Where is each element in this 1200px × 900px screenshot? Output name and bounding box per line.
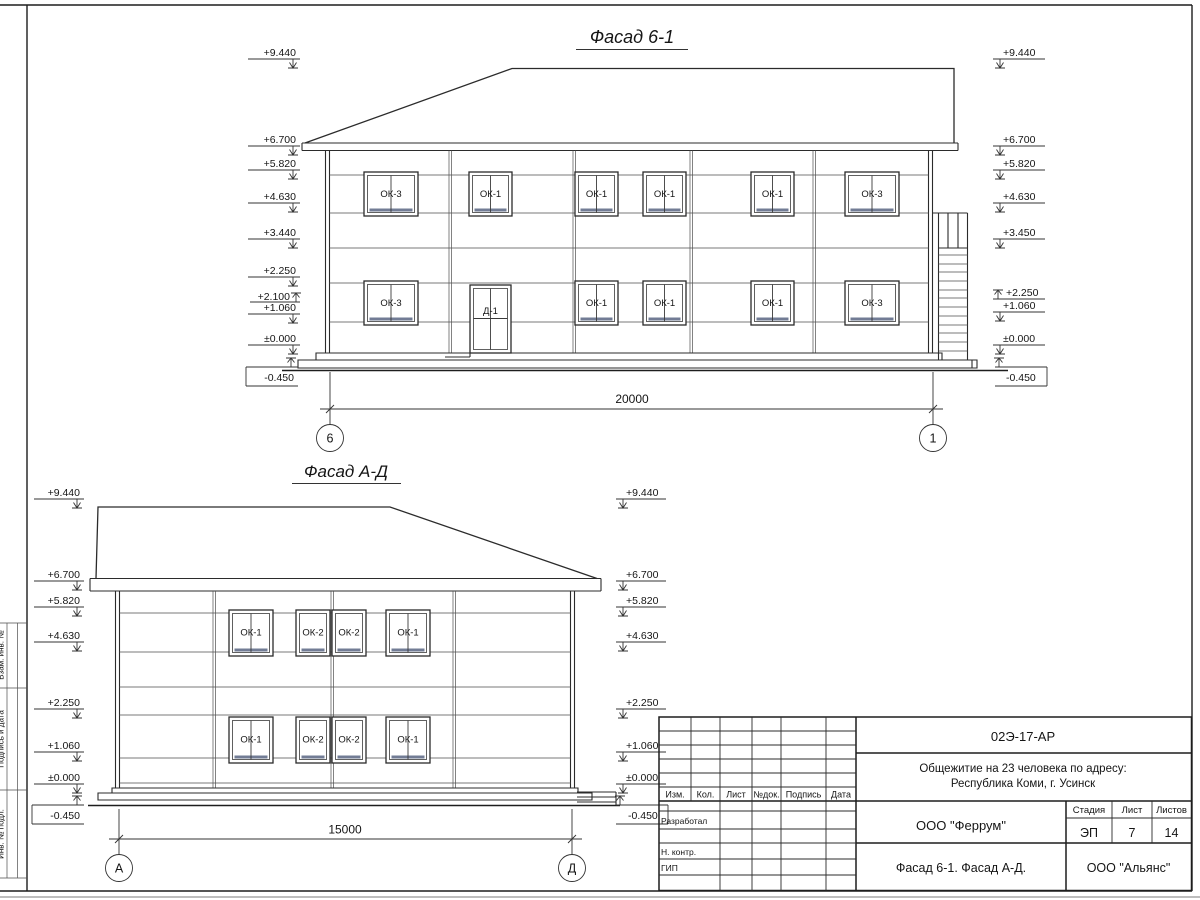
plinth-base-a-d xyxy=(98,788,592,800)
col-list: Лист xyxy=(726,790,746,800)
window-ok1: ОК-1 xyxy=(751,172,794,216)
window-ok3: ОК-3 xyxy=(845,172,899,216)
elevation-mark: +6.700 xyxy=(1003,134,1036,146)
dimension-6-1: 20000 6 1 xyxy=(317,372,947,452)
elevation-mark: ±0.000 xyxy=(1003,333,1035,345)
elevation-mark: +9.440 xyxy=(626,487,659,499)
window-ok1: ОК-1 xyxy=(751,281,794,325)
window-ok1: ОК-1 xyxy=(643,172,686,216)
window-ok2: ОК-2 xyxy=(332,610,366,656)
dimension-a-d: 15000 А Д xyxy=(106,809,586,882)
facade-drawing-canvas: Взам. инв. № Подпись и дата Инв. № подл.… xyxy=(0,0,1200,900)
title-block: 02Э-17-АР Общежитие на 23 человека по ад… xyxy=(659,717,1192,891)
elevation-marks-right-6-1: +9.440 +6.700 +5.820 +4.630 +3.450 +2.25… xyxy=(993,47,1047,386)
elevation-mark: +9.440 xyxy=(264,47,297,59)
elevation-mark: +4.630 xyxy=(626,630,659,642)
elevation-marks-left-a-d: +9.440 +6.700 +5.820 +4.630 +2.250 +1.06… xyxy=(32,487,84,824)
org-customer: ООО "Альянс" xyxy=(1087,861,1171,875)
elevation-mark: +1.060 xyxy=(1003,300,1036,312)
elevation-mark: +2.250 xyxy=(1006,287,1039,299)
window-ok1: ОК-1 xyxy=(469,172,512,216)
window-label: ОК-1 xyxy=(397,735,418,746)
elevation-mark: ±0.000 xyxy=(264,333,296,345)
window-label: ОК-1 xyxy=(586,298,607,309)
door-label: Д-1 xyxy=(483,306,498,317)
elevation-mark: +5.820 xyxy=(626,595,659,607)
window-label: ОК-1 xyxy=(762,189,783,200)
elevation-mark: ±0.000 xyxy=(626,772,658,784)
stage-value: ЭП xyxy=(1080,826,1098,840)
facade-6-1-drawing: Фасад 6-1 ОК-3 ОК-1 ОК-1 xyxy=(246,27,1047,452)
axis-label: 1 xyxy=(930,432,937,446)
dimension-value: 20000 xyxy=(615,392,649,406)
window-label: ОК-2 xyxy=(302,628,323,639)
role-developer: Разработал xyxy=(661,816,707,826)
window-ok1: ОК-1 xyxy=(229,717,273,763)
margin-label-podpis: Подпись и дата xyxy=(0,710,6,768)
window-label: ОК-1 xyxy=(480,189,501,200)
window-label: ОК-1 xyxy=(762,298,783,309)
ladder-rungs xyxy=(939,255,968,351)
elevation-mark: +4.630 xyxy=(264,191,297,203)
elevation-mark: -0.450 xyxy=(50,810,80,822)
elevation-mark: +5.820 xyxy=(48,595,81,607)
elevation-mark: +2.250 xyxy=(264,265,297,277)
elevation-mark: -0.450 xyxy=(628,810,658,822)
elevation-mark: -0.450 xyxy=(1006,372,1036,384)
org-designer: ООО "Феррум" xyxy=(916,818,1006,833)
fire-escape-ladder xyxy=(933,213,973,368)
facade-6-1-title: Фасад 6-1 xyxy=(590,27,674,47)
elevation-mark: +9.440 xyxy=(1003,47,1036,59)
eaves-band-a-d xyxy=(90,579,601,592)
axis-label: 6 xyxy=(327,432,334,446)
elevation-mark: +9.440 xyxy=(48,487,81,499)
facade-a-d-drawing: Фасад А-Д ОК-1 ОК-2 ОК-2 ОК-1 ОК xyxy=(32,462,668,882)
window-label: ОК-3 xyxy=(380,189,401,200)
role-gip: ГИП xyxy=(661,863,678,873)
window-ok1: ОК-1 xyxy=(386,610,430,656)
stage-label: Стадия xyxy=(1073,805,1105,816)
elevation-mark: +5.820 xyxy=(264,158,297,170)
elevation-mark: +1.060 xyxy=(626,740,659,752)
sheet-number: 7 xyxy=(1129,826,1136,840)
window-label: ОК-1 xyxy=(654,189,675,200)
roof-outline-6-1 xyxy=(305,69,954,144)
sheets-label: Листов xyxy=(1156,805,1187,816)
entrance-steps-side xyxy=(577,792,616,806)
elevation-mark: +6.700 xyxy=(48,569,81,581)
eaves-band-6-1 xyxy=(302,143,958,151)
facade-a-d-title: Фасад А-Д xyxy=(304,462,388,481)
col-kol: Кол. xyxy=(697,790,715,800)
window-ok2: ОК-2 xyxy=(332,717,366,763)
elevation-mark: +5.820 xyxy=(1003,158,1036,170)
elevation-mark: +6.700 xyxy=(264,134,297,146)
elevation-mark: +4.630 xyxy=(1003,191,1036,203)
horizontal-panel-joints-6-1 xyxy=(330,175,929,322)
plinth-base-6-1 xyxy=(298,353,977,368)
margin-label-vzam: Взам. инв. № xyxy=(0,630,6,680)
sheet-label: Лист xyxy=(1122,805,1143,816)
axis-label: А xyxy=(115,862,124,876)
elevation-mark: ±0.000 xyxy=(48,772,80,784)
window-ok1: ОК-1 xyxy=(229,610,273,656)
window-label: ОК-2 xyxy=(338,735,359,746)
dimension-line xyxy=(320,405,943,413)
ladder-rails xyxy=(939,213,968,360)
col-izm: Изм. xyxy=(665,790,684,800)
window-label: ОК-1 xyxy=(397,628,418,639)
window-label: ОК-3 xyxy=(861,298,882,309)
window-ok2: ОК-2 xyxy=(296,717,330,763)
elevation-mark: +1.060 xyxy=(264,302,297,314)
axis-label: Д xyxy=(568,862,577,876)
drawing-caption: Фасад 6-1. Фасад А-Д. xyxy=(896,861,1026,875)
window-label: ОК-1 xyxy=(654,298,675,309)
document-number: 02Э-17-АР xyxy=(991,729,1055,744)
window-ok1: ОК-1 xyxy=(643,281,686,325)
elevation-mark: +2.250 xyxy=(48,697,81,709)
col-ndok: №док. xyxy=(753,790,779,800)
dimension-value: 15000 xyxy=(328,823,362,837)
drawing-sheet: Взам. инв. № Подпись и дата Инв. № подл.… xyxy=(0,0,1200,900)
elevation-mark: +3.440 xyxy=(264,227,297,239)
elevation-mark: -0.450 xyxy=(264,372,294,384)
project-title-line2: Республика Коми, г. Усинск xyxy=(951,778,1096,790)
window-ok3: ОК-3 xyxy=(364,172,418,216)
margin-label-inv: Инв. № подл. xyxy=(0,809,6,859)
window-ok3: ОК-3 xyxy=(845,281,899,325)
window-label: ОК-2 xyxy=(302,735,323,746)
elevation-mark: +3.450 xyxy=(1003,227,1036,239)
window-label: ОК-3 xyxy=(861,189,882,200)
window-label: ОК-2 xyxy=(338,628,359,639)
window-ok1: ОК-1 xyxy=(386,717,430,763)
ladder-base xyxy=(934,360,972,368)
elevation-mark: +6.700 xyxy=(626,569,659,581)
window-ok1: ОК-1 xyxy=(575,281,618,325)
window-label: ОК-1 xyxy=(240,628,261,639)
role-ncontr: Н. контр. xyxy=(661,847,696,857)
elevation-mark: +2.250 xyxy=(626,697,659,709)
elevation-mark: +4.630 xyxy=(48,630,81,642)
ladder-cage xyxy=(933,213,968,248)
project-title-line1: Общежитие на 23 человека по адресу: xyxy=(919,763,1126,775)
col-podpis: Подпись xyxy=(786,790,822,800)
roof-outline-a-d xyxy=(96,507,597,579)
sheets-total: 14 xyxy=(1165,826,1179,840)
window-label: ОК-3 xyxy=(380,298,401,309)
elevation-marks-left-6-1: +9.440 +6.700 +5.820 +4.630 +3.440 +2.25… xyxy=(246,47,301,386)
window-label: ОК-1 xyxy=(240,735,261,746)
entrance-door: Д-1 xyxy=(470,285,511,353)
col-data: Дата xyxy=(831,790,851,800)
window-ok3: ОК-3 xyxy=(364,281,418,325)
window-label: ОК-1 xyxy=(586,189,607,200)
elevation-mark: +1.060 xyxy=(48,740,81,752)
window-ok2: ОК-2 xyxy=(296,610,330,656)
window-ok1: ОК-1 xyxy=(575,172,618,216)
